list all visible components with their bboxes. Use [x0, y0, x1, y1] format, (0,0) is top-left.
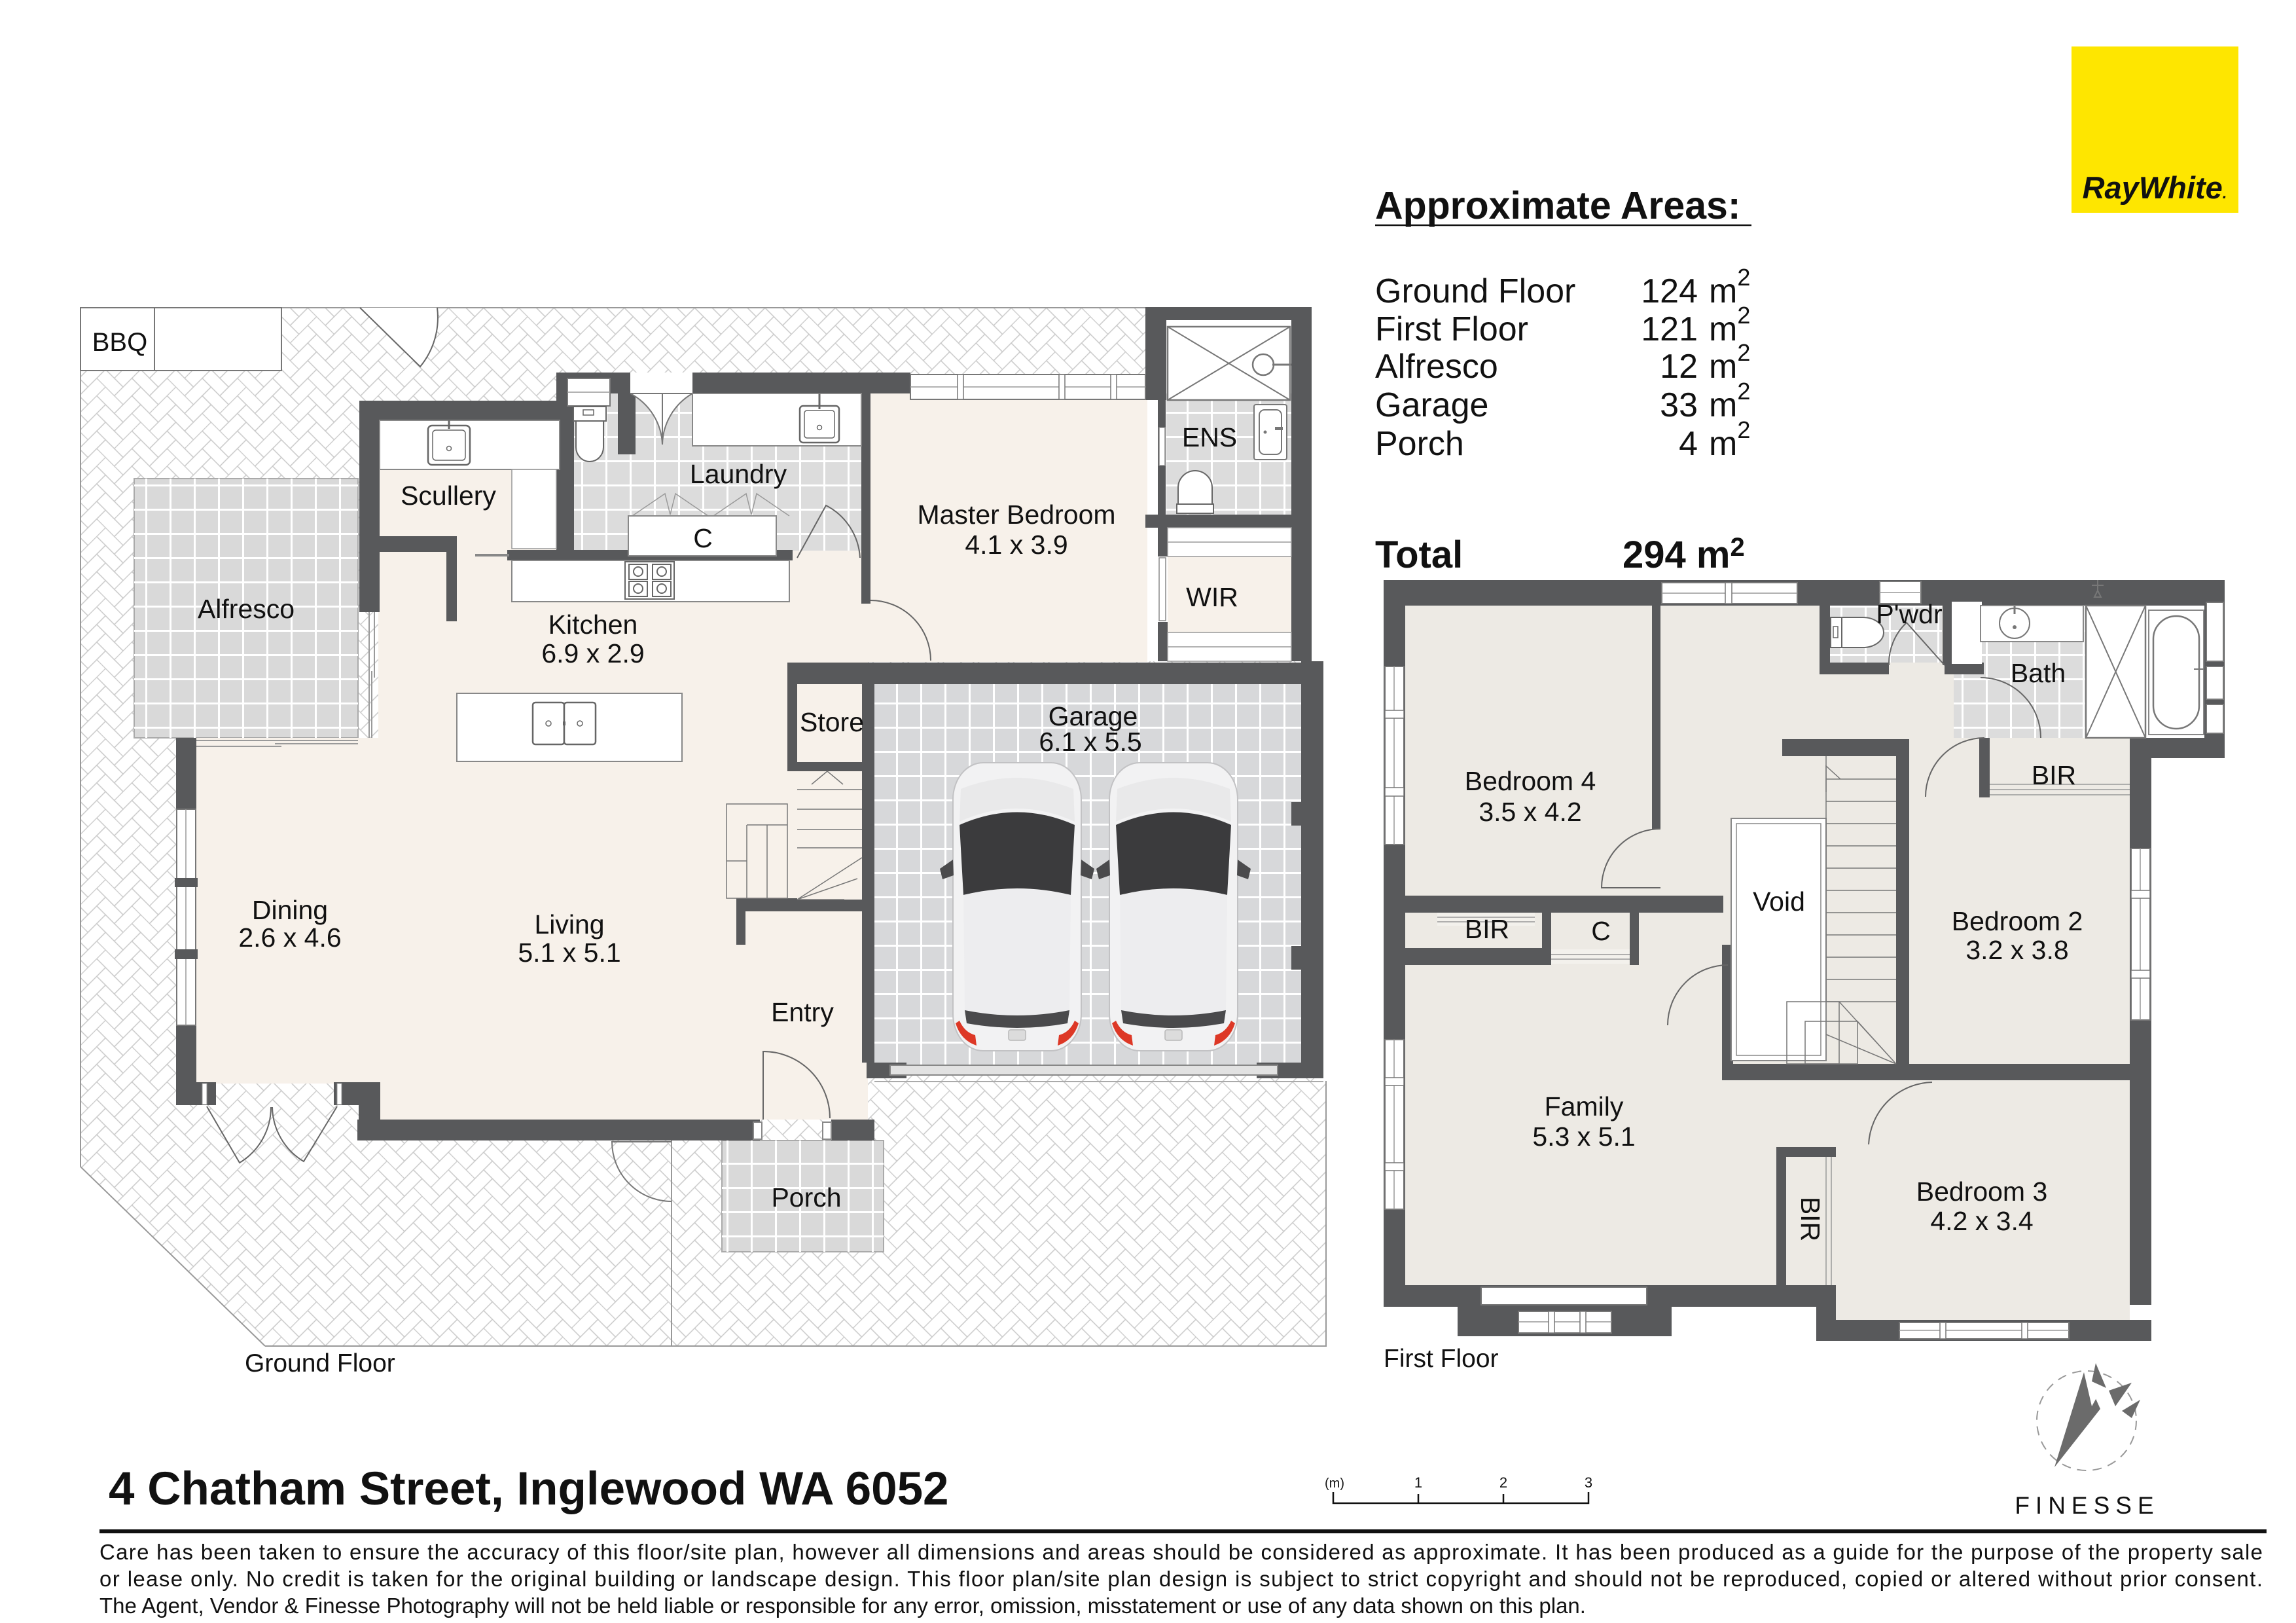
svg-text:Bedroom 2: Bedroom 2: [1952, 906, 2083, 936]
svg-text:BIR: BIR: [1795, 1197, 1825, 1241]
svg-text:RayWhite.: RayWhite.: [2083, 170, 2227, 205]
svg-text:4: 4: [1679, 425, 1698, 463]
svg-text:Scullery: Scullery: [401, 481, 496, 511]
svg-text:C: C: [1591, 916, 1611, 946]
svg-text:5.3 x 5.1: 5.3 x 5.1: [1532, 1122, 1635, 1152]
svg-text:First Floor: First Floor: [1375, 310, 1528, 348]
svg-text:4.2 x 3.4: 4.2 x 3.4: [1930, 1206, 2033, 1236]
svg-text:Alfresco: Alfresco: [198, 594, 295, 624]
svg-text:Bath: Bath: [2011, 658, 2066, 688]
svg-text:Family: Family: [1545, 1091, 1624, 1122]
svg-text:Care has been taken to ensure: Care has been taken to ensure the accura…: [99, 1540, 2263, 1564]
svg-text:Store: Store: [800, 707, 864, 737]
svg-text:FINESSE: FINESSE: [2015, 1492, 2159, 1519]
svg-text:2: 2: [1499, 1474, 1507, 1491]
svg-text:5.1 x 5.1: 5.1 x 5.1: [518, 938, 620, 968]
svg-text:Ground Floor: Ground Floor: [245, 1349, 395, 1377]
svg-text:P'wdr: P'wdr: [1876, 599, 1942, 629]
svg-text:Master Bedroom: Master Bedroom: [917, 500, 1115, 530]
svg-text:294 m2: 294 m2: [1623, 533, 1745, 576]
svg-text:Alfresco: Alfresco: [1375, 348, 1498, 386]
svg-text:Approximate Areas:: Approximate Areas:: [1375, 184, 1740, 227]
svg-text:Void: Void: [1753, 886, 1805, 917]
svg-text:2.6 x 4.6: 2.6 x 4.6: [238, 922, 341, 953]
svg-text:BIR: BIR: [2032, 760, 2076, 790]
svg-text:3.5 x 4.2: 3.5 x 4.2: [1479, 797, 1581, 827]
svg-text:ENS: ENS: [1182, 422, 1237, 452]
svg-text:Entry: Entry: [771, 997, 834, 1027]
svg-text:Dining: Dining: [252, 895, 328, 925]
svg-text:Total: Total: [1375, 534, 1463, 576]
svg-text:3.2 x 3.8: 3.2 x 3.8: [1965, 935, 2068, 965]
svg-text:C: C: [693, 523, 713, 553]
svg-text:WIR: WIR: [1186, 582, 1238, 612]
svg-text:BBQ: BBQ: [92, 328, 147, 357]
svg-text:Bedroom 4: Bedroom 4: [1465, 766, 1596, 796]
svg-text:1: 1: [1414, 1474, 1422, 1491]
svg-text:Kitchen: Kitchen: [548, 610, 638, 640]
svg-text:Living: Living: [534, 909, 604, 939]
svg-text:Garage: Garage: [1375, 386, 1488, 424]
svg-text:(m): (m): [1325, 1476, 1344, 1491]
svg-text:Ground Floor: Ground Floor: [1375, 272, 1575, 310]
svg-text:Laundry: Laundry: [690, 459, 787, 489]
svg-text:or lease only. No credit is ta: or lease only. No credit is taken for th…: [99, 1567, 2263, 1591]
svg-text:BIR: BIR: [1465, 914, 1509, 944]
svg-text:First Floor: First Floor: [1384, 1345, 1499, 1373]
svg-text:121: 121: [1641, 310, 1698, 348]
svg-text:3: 3: [1585, 1474, 1592, 1491]
svg-text:33: 33: [1660, 386, 1698, 424]
svg-text:4.1 x 3.9: 4.1 x 3.9: [965, 530, 1067, 560]
svg-text:12: 12: [1660, 348, 1698, 386]
svg-text:Porch: Porch: [771, 1182, 841, 1213]
svg-text:The Agent, Vendor & Finesse Ph: The Agent, Vendor & Finesse Photography …: [99, 1594, 1586, 1618]
svg-text:4 Chatham Street, Inglewood WA: 4 Chatham Street, Inglewood WA 6052: [109, 1463, 949, 1515]
svg-text:124: 124: [1641, 272, 1698, 310]
svg-text:6.9 x 2.9: 6.9 x 2.9: [541, 638, 644, 668]
svg-text:6.1 x 5.5: 6.1 x 5.5: [1039, 727, 1141, 757]
svg-text:Porch: Porch: [1375, 425, 1464, 463]
svg-text:Bedroom 3: Bedroom 3: [1916, 1176, 2048, 1207]
